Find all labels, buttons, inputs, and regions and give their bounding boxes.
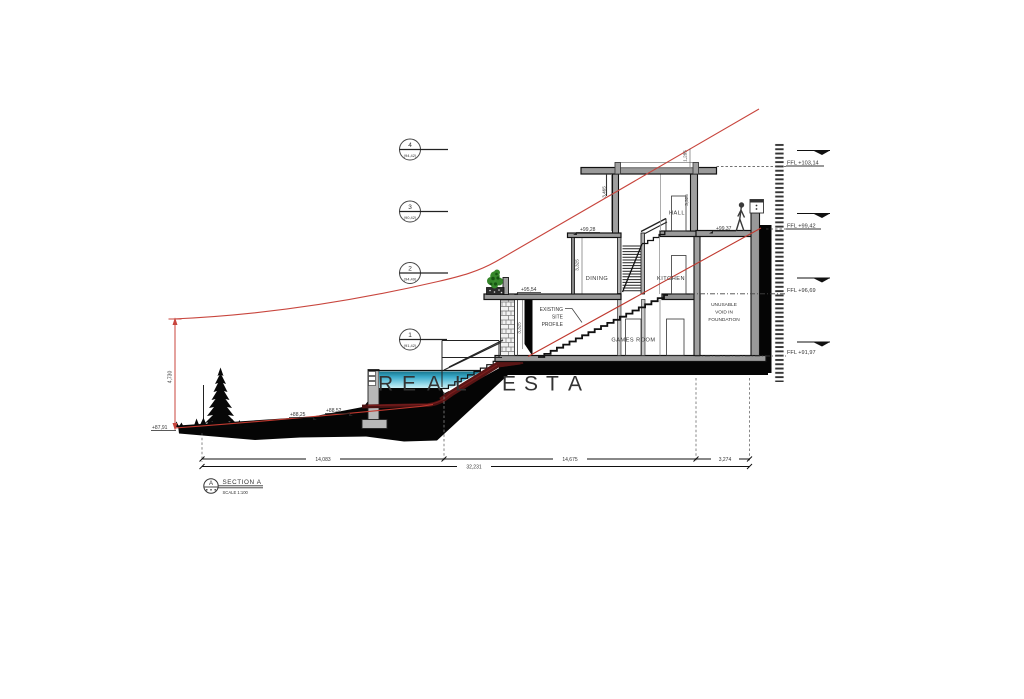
svg-text:E: E [402,373,416,396]
svg-text:PROFILE: PROFILE [542,322,564,328]
svg-text:EXISTING: EXISTING [540,307,563,313]
svg-text:(94,42): (94,42) [404,153,417,158]
svg-text:3,274: 3,274 [719,457,732,463]
svg-text:UNUSABLE: UNUSABLE [711,302,737,308]
svg-text:SECTION A: SECTION A [223,479,262,486]
svg-text:A: A [427,373,441,396]
svg-text:1,285: 1,285 [683,150,688,162]
svg-text:14,675: 14,675 [562,457,578,463]
svg-text:14,083: 14,083 [315,457,331,463]
svg-text:3,465: 3,465 [602,186,607,198]
svg-text:3,325: 3,325 [575,259,580,271]
svg-text:32,231: 32,231 [466,465,482,471]
svg-text:A: A [568,373,582,396]
svg-text:S: S [524,373,538,396]
svg-text:FOUNDATION: FOUNDATION [708,317,740,323]
svg-text:2: 2 [408,266,412,273]
svg-text:HALL: HALL [669,211,685,217]
svg-text:(90,42): (90,42) [404,215,417,220]
svg-text:FFL +96,69: FFL +96,69 [787,288,816,294]
svg-text:3: 3 [408,204,412,211]
svg-text:FFL +91,97: FFL +91,97 [787,350,816,356]
svg-text:(91,42): (91,42) [404,343,417,348]
svg-text:A: A [209,481,213,487]
svg-text:4: 4 [408,142,412,149]
svg-text:4,730: 4,730 [168,371,174,384]
svg-text:E: E [502,373,516,396]
svg-text:3,325: 3,325 [684,194,689,206]
svg-text:R: R [378,373,393,396]
svg-text:1: 1 [408,332,412,339]
svg-text:DINING: DINING [586,276,609,282]
svg-text:(94,49): (94,49) [404,277,417,282]
svg-text:L: L [455,373,467,396]
svg-text:VOID IN: VOID IN [715,310,733,316]
svg-text:KITCHEN: KITCHEN [657,276,685,282]
svg-text:SCALE 1:100: SCALE 1:100 [223,490,249,495]
svg-text:SITE: SITE [552,315,564,321]
svg-text:3,325: 3,325 [517,322,522,334]
svg-text:GAMES ROOM: GAMES ROOM [611,338,655,344]
svg-text:T: T [546,373,559,396]
